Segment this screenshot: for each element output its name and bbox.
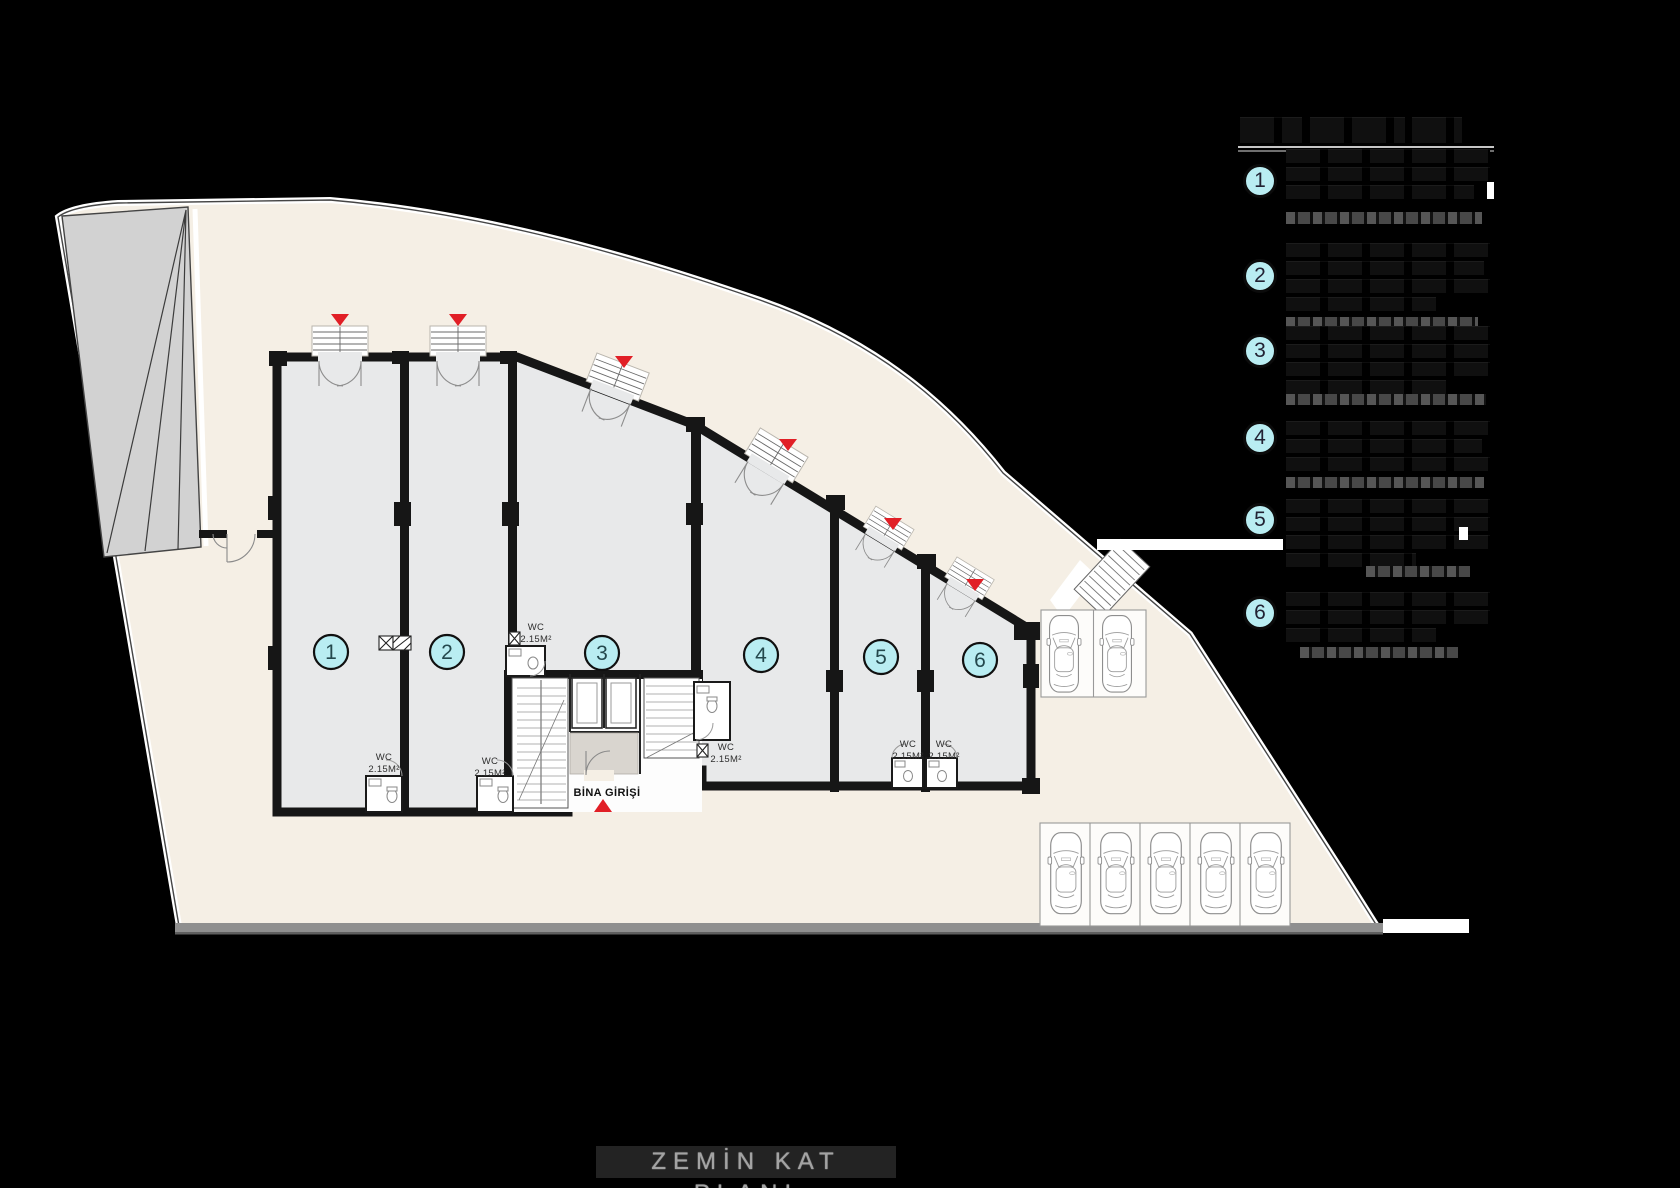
- building-entrance-label: BİNA GİRİŞİ: [574, 786, 641, 799]
- car-icon: [1198, 833, 1234, 914]
- legend-item-6-number: 6: [1243, 596, 1277, 630]
- svg-text:WC: WC: [482, 756, 498, 767]
- svg-text:2: 2: [441, 641, 453, 664]
- svg-text:2.15M²: 2.15M²: [520, 634, 551, 645]
- page: 1 2 3 4 5 6 WC: [0, 0, 1680, 1188]
- legend-text-redacted: [1286, 149, 1490, 163]
- unit-4-badge: 4: [744, 638, 778, 672]
- svg-text:WC: WC: [528, 622, 544, 633]
- car-icon: [1148, 833, 1184, 914]
- svg-text:3: 3: [596, 642, 608, 665]
- unit-5-badge: 5: [864, 640, 898, 674]
- car-icon: [1248, 833, 1284, 914]
- svg-text:5: 5: [875, 646, 887, 669]
- svg-text:2.15M²: 2.15M²: [368, 764, 399, 775]
- legend-divider: [1238, 146, 1494, 148]
- parking-bottom: [1040, 823, 1290, 926]
- unit-3-badge: 3: [585, 636, 619, 670]
- svg-text:WC: WC: [718, 742, 734, 753]
- svg-text:WC: WC: [936, 739, 952, 750]
- unit-2-badge: 2: [430, 635, 464, 669]
- parking-top: [1041, 610, 1146, 697]
- legend-item-1-number: 1: [1243, 164, 1277, 198]
- svg-text:2.15M²: 2.15M²: [710, 754, 741, 765]
- car-icon: [1047, 616, 1081, 693]
- svg-text:6: 6: [974, 649, 986, 672]
- car-ramp: [62, 207, 206, 557]
- car-icon: [1048, 833, 1084, 914]
- svg-text:2.15M²: 2.15M²: [892, 751, 923, 762]
- unit-1-badge: 1: [314, 635, 348, 669]
- svg-text:WC: WC: [376, 752, 392, 763]
- unit-6-badge: 6: [963, 643, 997, 677]
- car-icon: [1100, 616, 1134, 693]
- legend-item-5-number: 5: [1243, 503, 1277, 537]
- svg-text:4: 4: [755, 644, 767, 667]
- svg-text:2.15M²: 2.15M²: [474, 768, 505, 779]
- plan-title: ZEMİN KAT PLANI: [596, 1146, 896, 1178]
- legend-item-2-number: 2: [1243, 259, 1277, 293]
- svg-text:1: 1: [325, 641, 337, 664]
- legend-item-3-number: 3: [1243, 334, 1277, 368]
- svg-text:WC: WC: [900, 739, 916, 750]
- car-icon: [1098, 833, 1134, 914]
- legend-item-4-number: 4: [1243, 421, 1277, 455]
- svg-text:2.15M²: 2.15M²: [928, 751, 959, 762]
- legend-title-redacted: [1240, 117, 1302, 143]
